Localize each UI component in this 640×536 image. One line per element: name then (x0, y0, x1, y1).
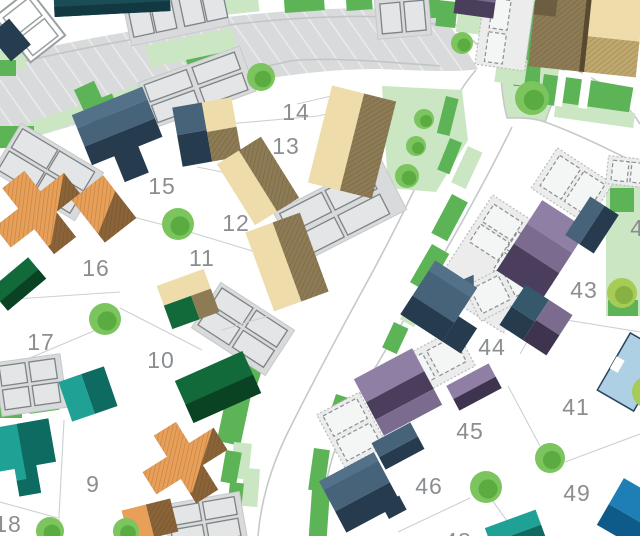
tree (395, 164, 419, 188)
tree (247, 63, 275, 91)
house-green-left-edge (0, 257, 46, 311)
tree (607, 278, 637, 308)
hedge (431, 194, 468, 241)
plot-number: 49 (563, 480, 591, 506)
plot-number: 13 (272, 133, 300, 159)
house-blue-plot49 (597, 478, 640, 536)
parking-bay (2, 386, 31, 409)
plot-number: 48 (444, 528, 472, 536)
house-teal-plot18 (0, 418, 61, 500)
plot-number: 10 (147, 347, 175, 373)
parking-bay (380, 2, 403, 34)
plot-number: 46 (415, 473, 443, 499)
plot-number: 41 (562, 394, 590, 420)
hedge (346, 0, 373, 11)
parking-bay (611, 160, 629, 182)
parking-bay (0, 363, 28, 386)
plot-number: 18 (0, 511, 22, 536)
plot-number: 15 (148, 173, 176, 199)
tree (36, 517, 64, 536)
plot-number: 11 (189, 245, 215, 271)
tree (451, 32, 473, 54)
house-tan-top-right (528, 0, 640, 77)
parking-bay (404, 0, 427, 32)
plot-number: 16 (82, 255, 110, 281)
plot-number: 9 (86, 471, 100, 497)
tree (470, 471, 502, 503)
hedge (309, 490, 330, 536)
hedge (0, 60, 16, 76)
site-plan-map: 14131512111617109184344414546494248 (0, 0, 640, 536)
hedge (610, 188, 634, 212)
tree (162, 208, 194, 240)
parking-court (606, 156, 640, 189)
garage-slate-plot46 (372, 422, 425, 469)
tree (414, 109, 434, 129)
house-teal-bottom (485, 510, 545, 536)
parking-bay (630, 162, 640, 184)
hedge (220, 450, 241, 484)
garage-teal (58, 366, 117, 421)
tree (89, 303, 121, 335)
tree (515, 81, 549, 115)
plot-number: 45 (456, 418, 484, 444)
plot-number: 42 (630, 215, 640, 241)
plot-number: 12 (222, 210, 250, 236)
parking-court (374, 0, 431, 39)
plot-number: 44 (478, 334, 506, 360)
site-plan-viewport: 14131512111617109184344414546494248 (0, 0, 640, 536)
plot-number: 14 (282, 99, 310, 125)
parking-bay (29, 358, 58, 381)
house-lightblue-plot41 (597, 333, 640, 411)
tree (535, 443, 565, 473)
hedge (241, 468, 260, 507)
parking-court (0, 354, 67, 417)
parking-bay (32, 382, 61, 405)
plot-number: 43 (570, 277, 598, 303)
plot-number: 17 (27, 329, 55, 355)
tree (406, 136, 426, 156)
